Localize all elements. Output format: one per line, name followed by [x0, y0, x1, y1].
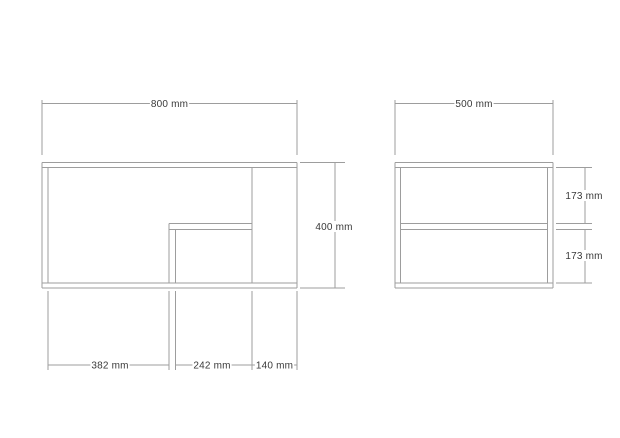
front-height-dim-label: 400 mm: [315, 222, 352, 233]
side-right-dim-label-2: 173 mm: [565, 251, 602, 262]
side-right-dim-label-1: 173 mm: [565, 191, 602, 202]
technical-drawing: 800 mm400 mm382 mm242 mm140 mm500 mm173 …: [0, 0, 620, 438]
front-bottom-dim-label-1: 382 mm: [91, 361, 128, 372]
front-width-dim-label: 800 mm: [151, 99, 188, 110]
front-bottom-dim-label-3: 140 mm: [256, 361, 293, 372]
front-bottom-dim-label-2: 242 mm: [193, 361, 230, 372]
side-width-dim-label: 500 mm: [455, 99, 492, 110]
drawing-canvas: 800 mm400 mm382 mm242 mm140 mm500 mm173 …: [0, 0, 620, 438]
